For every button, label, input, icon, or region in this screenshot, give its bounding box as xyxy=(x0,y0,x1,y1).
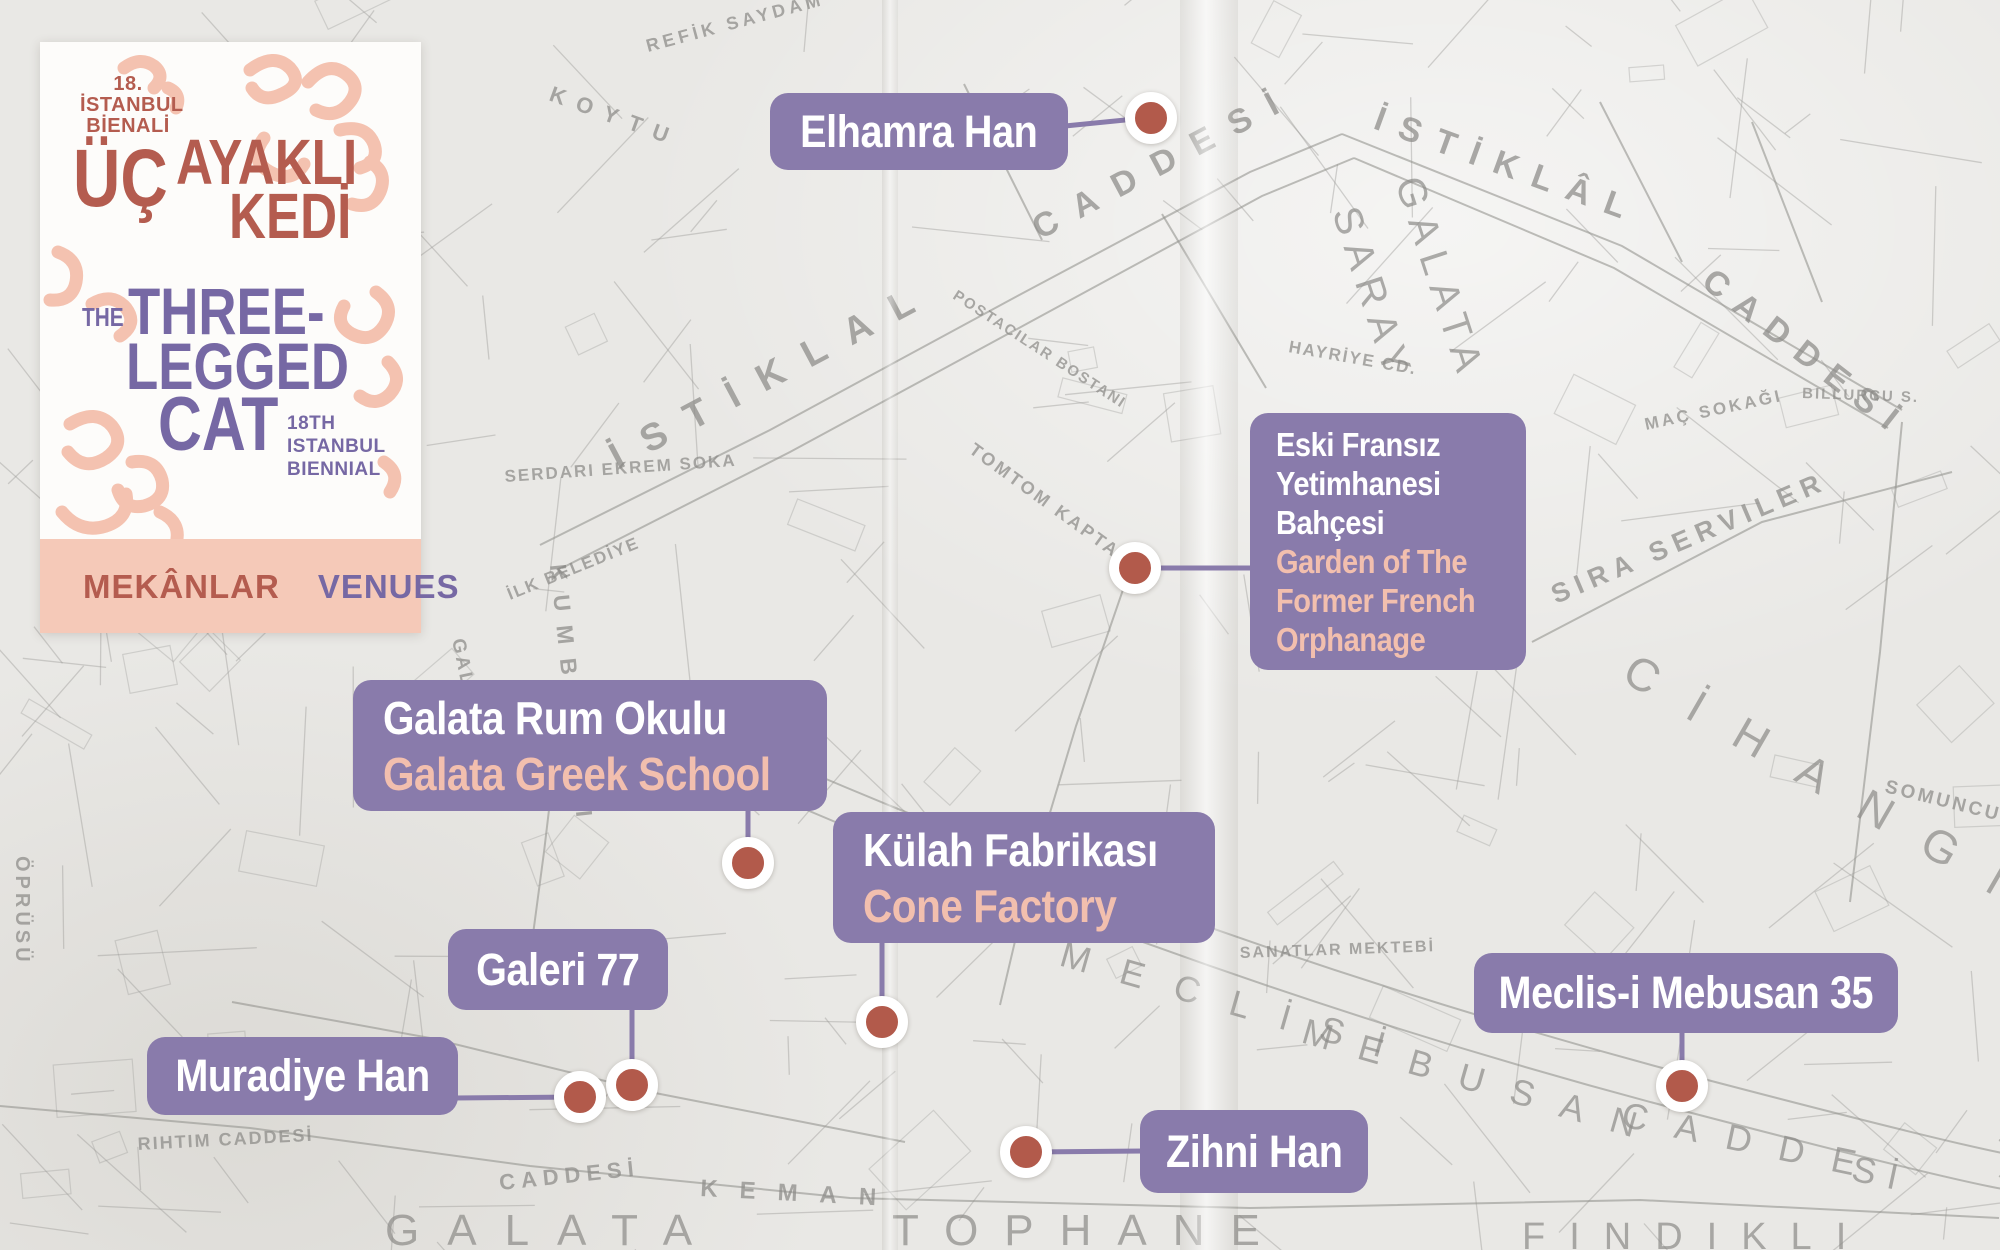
poster-footer-venues: VENUES xyxy=(318,570,460,603)
poster-title-cat: CAT xyxy=(158,387,278,463)
venue-marker-galata-greek-school xyxy=(722,837,774,889)
venue-name-en-line: Garden of The xyxy=(1276,542,1496,581)
poster-edition-tr: 18. İSTANBUL BİENALİ xyxy=(80,74,176,137)
venue-label-zihni-han: Zihni Han xyxy=(1140,1110,1368,1193)
poster-title-the: THE xyxy=(82,304,124,330)
poster-edition-line: ISTANBUL xyxy=(287,435,386,458)
poster-title-kedi: KEDİ xyxy=(229,184,351,248)
venue-name-en: Galata Greek School xyxy=(383,746,774,802)
poster-edition-line: BIENNIAL xyxy=(287,458,386,481)
venue-marker-zihni-han xyxy=(1000,1126,1052,1178)
venue-marker-french-orphanage xyxy=(1109,542,1161,594)
poster-footer-mekanlar: MEKÂNLAR xyxy=(83,570,280,603)
venue-name: Zihni Han xyxy=(1166,1126,1342,1178)
poster-edition-line: 18TH xyxy=(287,412,386,435)
venue-label-french-orphanage: Eski Fransız Yetimhanesi Bahçesi Garden … xyxy=(1250,413,1526,670)
venue-name-en-line: Former French xyxy=(1276,581,1496,620)
venue-label-muradiye-han: Muradiye Han xyxy=(147,1037,458,1115)
venue-marker-elhamra-han xyxy=(1125,92,1177,144)
venue-marker-muradiye-han xyxy=(554,1071,606,1123)
venue-name-en: Cone Factory xyxy=(863,878,1173,934)
venue-name-line: Bahçesi xyxy=(1276,503,1496,542)
poster-edition-line: 18. xyxy=(80,74,176,95)
venue-name: Galata Rum Okulu xyxy=(383,690,774,746)
poster-footer-band: MEKÂNLAR VENUES xyxy=(40,539,421,633)
poster-edition-en: 18TH ISTANBUL BIENNIAL xyxy=(287,412,386,481)
venue-name: Külah Fabrikası xyxy=(863,822,1173,878)
venue-name: Muradiye Han xyxy=(175,1050,429,1102)
venue-label-cone-factory: Külah Fabrikası Cone Factory xyxy=(833,812,1215,943)
venue-name-line: Eski Fransız xyxy=(1276,425,1496,464)
venue-name: Elhamra Han xyxy=(800,106,1037,158)
biennial-poster: 18. İSTANBUL BİENALİ ÜÇ AYAKLI KEDİ THE … xyxy=(40,42,421,633)
istanbul-biennial-venues-map: İSTİKLAL CADDESİ İSTİKLÂL CADDESİ GALATA… xyxy=(0,0,2000,1250)
venue-name-en-line: Orphanage xyxy=(1276,620,1496,659)
poster-edition-line: İSTANBUL xyxy=(80,95,176,116)
poster-title-uc: ÜÇ xyxy=(73,138,168,220)
venue-label-galata-greek-school: Galata Rum Okulu Galata Greek School xyxy=(353,680,827,811)
venue-marker-galeri-77 xyxy=(606,1059,658,1111)
venue-label-meclis-i-mebusan-35: Meclis-i Mebusan 35 xyxy=(1474,953,1898,1033)
venue-name: Meclis-i Mebusan 35 xyxy=(1499,967,1874,1019)
venue-label-elhamra-han: Elhamra Han xyxy=(770,93,1068,170)
venue-name: Galeri 77 xyxy=(476,944,639,996)
venue-marker-meclis-i-mebusan-35 xyxy=(1656,1060,1708,1112)
venue-name-line: Yetimhanesi xyxy=(1276,464,1496,503)
venue-label-galeri-77: Galeri 77 xyxy=(448,929,668,1010)
venue-marker-cone-factory xyxy=(856,996,908,1048)
